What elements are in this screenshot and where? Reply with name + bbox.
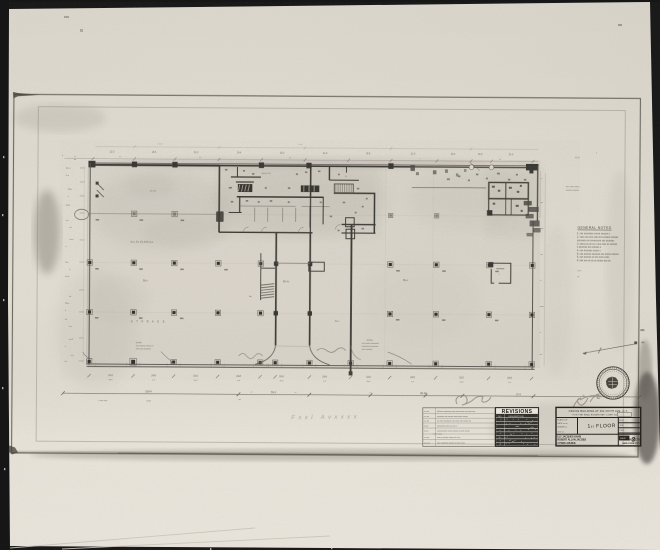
svg-text:x.x.xx: x.x.xx [424, 416, 429, 418]
svg-text:21-0: 21-0 [194, 152, 199, 154]
svg-text:2 PARK AVENUE: 2 PARK AVENUE [557, 442, 576, 445]
svg-text:16-8: 16-8 [366, 153, 371, 155]
svg-text:xx.xx: xx.xx [424, 430, 429, 432]
svg-text:xxxxxx xxxxxx: xxxxxx xxxxxx [566, 190, 580, 192]
svg-text:21-0: 21-0 [411, 154, 416, 156]
svg-text:xx: xx [289, 158, 291, 160]
svg-text:xx: xx [74, 156, 76, 158]
svg-text:16-0: 16-0 [459, 377, 464, 379]
svg-text:xx xxxx xxxxxxx xxx xxxx xxx x: xx xxxx xxxxxxx xxx xxxx xxx xxxxx xx [437, 421, 471, 423]
svg-text:xxx xxxxxx xxxxx xx: xxx xxxxxx xxxxx xx [136, 345, 154, 347]
svg-text:xxxxxxxx xxxxxxxx: xxxxxxxx xxxxxxxx [362, 346, 379, 348]
svg-text:19-0: 19-0 [478, 154, 483, 156]
svg-text:OFFICE BUILDING AT 261 FIFTH A: OFFICE BUILDING AT 261 FIFTH AVE. N.Y. [569, 409, 629, 413]
svg-text:x.x.xx: x.x.xx [424, 421, 429, 423]
svg-text:88-10: 88-10 [420, 392, 427, 395]
svg-text:24-8: 24-8 [322, 376, 327, 378]
svg-text:xxxx xxxx x xxxx: xxxx xxxx x xxxx [244, 176, 259, 178]
svg-text:x.x.xx: x.x.xx [424, 437, 429, 439]
svg-text:xxx xxxxxxxx xxxxx xx xxx xxxx: xxx xxxxxxxx xxxxx xx xxx xxxx [437, 442, 465, 444]
svg-text:x xxx xxx: x xxx xxx [98, 400, 108, 402]
svg-text:xxx xxxxx xxxxxxxx: xxx xxxxx xxxxxxxx [362, 343, 379, 345]
svg-text:JOB: JOB [619, 425, 624, 427]
svg-text:21-0: 21-0 [110, 152, 115, 154]
svg-text:x: x [420, 158, 421, 160]
svg-text:NEW YORK CITY: NEW YORK CITY [622, 443, 640, 445]
svg-text:x xxx xxxx: x xxx xxxx [433, 434, 442, 436]
svg-text:xx.xx: xx.xx [424, 426, 429, 428]
svg-text:21-0: 21-0 [323, 153, 328, 155]
svg-text:S T O R A G E: S T O R A G E [131, 319, 166, 323]
svg-text:16-0: 16-0 [193, 376, 198, 378]
svg-text:NO: NO [498, 416, 502, 418]
svg-text:ELY JACQUES KAHN: ELY JACQUES KAHN [557, 436, 581, 439]
svg-text:FOR THE REAL ESTATE IMP. CORP.: FOR THE REAL ESTATE IMP. CORP. No [573, 414, 618, 417]
svg-text:16-0: 16-0 [279, 376, 284, 378]
svg-text:FILE: FILE [619, 420, 624, 422]
svg-text:x.x.xx: x.x.xx [424, 411, 429, 413]
svg-text:2xx Fx PLATFxxx: 2xx Fx PLATFxxx [130, 241, 154, 244]
svg-text:Bx-1x: Bx-1x [283, 281, 290, 283]
svg-text:21-0: 21-0 [509, 154, 514, 156]
svg-text:xxxxxxxxxx xxxxx xxxxx xx xxx: xxxxxxxxxx xxxxx xxxxx xx xxx xxxxx [437, 430, 470, 432]
svg-text:xx: xx [119, 156, 121, 158]
svg-text:4. xxx xxx xx xx xx xxxxx xxx: 4. xxx xxx xx xx xx xxxxx xxx xx [577, 259, 611, 262]
svg-text:xx: xx [345, 176, 347, 178]
svg-text:xXxxxx xxxxxxx xxxx xxxx xxxx: xXxxxx xxxxxxx xxxx xxxx xxxx xx xxxx xx… [437, 411, 475, 413]
svg-text:xxxx xxx xxxxxxx: xxxx xxx xxxxxxx [136, 348, 151, 350]
svg-text:24-8: 24-8 [151, 375, 156, 377]
svg-text:NOTE:: NOTE: [136, 342, 143, 344]
svg-text:108-4: 108-4 [145, 390, 152, 393]
svg-text:xxx xx xxxxx xxxxx xx xx x: xxx xx xxxxx xxxxx xx xx x [437, 437, 460, 439]
svg-text:DRAWN xx: DRAWN xx [557, 426, 567, 429]
svg-text:xx xxx: xx xxx [150, 190, 157, 192]
svg-text:ROBERT ALLAN JACOBS: ROBERT ALLAN JACOBS [557, 439, 586, 442]
svg-text:24-8: 24-8 [507, 378, 512, 380]
svg-text:16-0: 16-0 [366, 377, 371, 379]
svg-text:ELEV PIT: ELEV PIT [262, 173, 272, 175]
svg-text:16-0: 16-0 [108, 375, 113, 377]
svg-text:Fxxl Avxxxx: Fxxl Avxxxx [291, 414, 360, 421]
svg-text:24-8: 24-8 [236, 376, 241, 378]
svg-text:24-8: 24-8 [410, 377, 415, 379]
svg-text:DESCRIPTION: DESCRIPTION [509, 416, 524, 418]
svg-text:CKD xx: CKD xx [557, 431, 564, 433]
svg-text:GENERAL NOTES: GENERAL NOTES [578, 226, 612, 230]
svg-text:27-0: 27-0 [516, 393, 522, 396]
svg-text:59-2: 59-2 [271, 391, 277, 394]
svg-text:20-0: 20-0 [280, 153, 285, 155]
svg-text:DWG: DWG [619, 430, 624, 432]
svg-text:x-x: x-x [499, 159, 502, 161]
svg-text:NOTE:: NOTE: [367, 340, 374, 342]
svg-text:DATE xx.xx: DATE xx.xx [557, 422, 567, 425]
svg-text:x-x: x-x [199, 157, 202, 159]
svg-text:xx: xx [369, 392, 371, 394]
svg-text:xxx xxxxxxx: xxx xxxxxxx [362, 349, 373, 351]
svg-text:18-6: 18-6 [152, 152, 157, 154]
svg-text:xxx xxxx xxxxx: xxx xxxx xxxxx [566, 186, 581, 188]
svg-text:xxxxxxx xxx xxxxx xxxx xxxx xx: xxxxxxx xxx xxxxx xxxx xxxx xxxxx [437, 416, 468, 418]
svg-text:x.xx.xx: x.xx.xx [424, 442, 430, 444]
svg-text:xx: xx [294, 392, 296, 394]
svg-text:ARCHITECTS: ARCHITECTS [624, 438, 640, 441]
svg-text:19-4: 19-4 [237, 153, 242, 155]
svg-text:xx: xx [250, 392, 252, 394]
svg-text:24-6: 24-6 [451, 154, 456, 156]
svg-text:x: x [596, 152, 597, 154]
svg-text:SCALE 1/8″: SCALE 1/8″ [557, 418, 568, 421]
svg-text:xxxxxxxx xxxx xx xxx x: xxxxxxxx xxxx xx xxx x [437, 426, 457, 428]
